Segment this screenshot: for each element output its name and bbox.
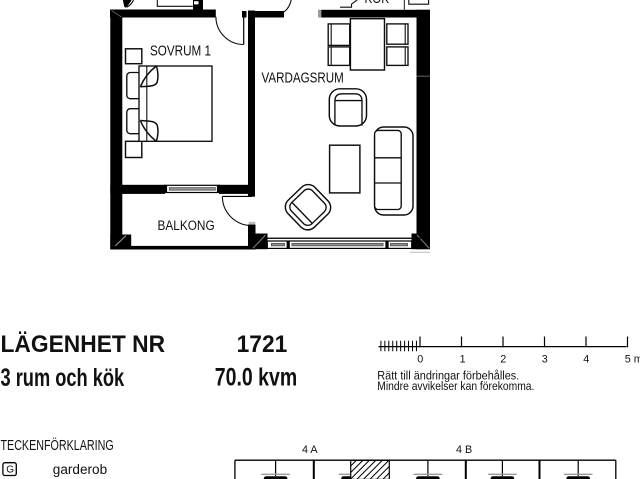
svg-text:3: 3 xyxy=(542,354,548,366)
svg-text:SOVRUM 1: SOVRUM 1 xyxy=(150,42,211,59)
svg-text:VARDAGSRUM: VARDAGSRUM xyxy=(262,69,344,86)
svg-text:LÄGENHET NR: LÄGENHET NR xyxy=(1,330,166,357)
svg-text:1721: 1721 xyxy=(237,330,288,357)
svg-text:2: 2 xyxy=(500,354,506,366)
svg-text:4 B: 4 B xyxy=(456,444,472,456)
svg-text:0: 0 xyxy=(417,354,423,366)
svg-text:garderob: garderob xyxy=(53,462,108,477)
svg-text:1: 1 xyxy=(460,354,466,366)
svg-text:4: 4 xyxy=(583,354,589,366)
svg-text:Mindre avvikelser kan förekomm: Mindre avvikelser kan förekomma. xyxy=(377,380,534,393)
svg-text:BALKONG: BALKONG xyxy=(158,217,215,233)
svg-text:70.0 kvm: 70.0 kvm xyxy=(215,363,297,391)
svg-text:4 A: 4 A xyxy=(302,444,318,456)
svg-text:TECKENFÖRKLARING: TECKENFÖRKLARING xyxy=(1,436,114,453)
svg-text:G: G xyxy=(6,465,14,476)
svg-text:3 rum och kök: 3 rum och kök xyxy=(1,363,125,392)
svg-text:5: 5 xyxy=(625,354,631,366)
svg-text:KÖK: KÖK xyxy=(365,0,390,6)
svg-text:m: m xyxy=(634,354,640,366)
